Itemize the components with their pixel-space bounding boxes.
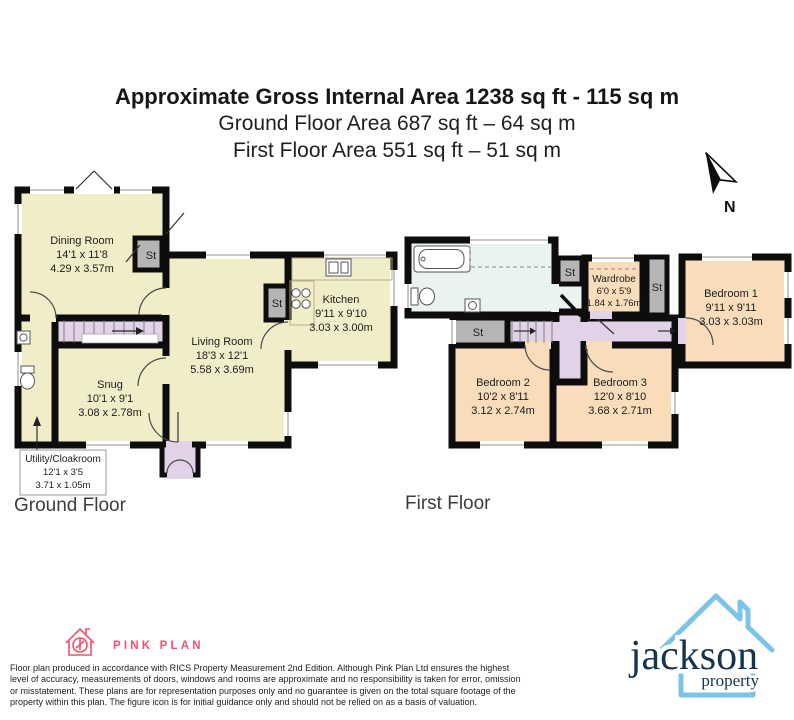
- floor-label-ground: Ground Floor: [14, 495, 127, 516]
- svg-text:6'0 x 5'9: 6'0 x 5'9: [597, 286, 632, 297]
- room-label-bedroom1: Bedroom 1: [704, 288, 758, 300]
- room-label-living: Living Room: [191, 336, 252, 348]
- ground-floor-plan: Utility/Cloakroom 12'1 x 3'5 3.71 x 1.05…: [14, 171, 398, 516]
- svg-text:10'2 x 8'11: 10'2 x 8'11: [477, 391, 529, 403]
- toilet-cistern: [411, 288, 418, 305]
- room-label-bedroom3: Bedroom 3: [593, 377, 647, 389]
- svg-text:1.84 x 1.76m: 1.84 x 1.76m: [587, 298, 642, 309]
- svg-text:5.58 x 3.69m: 5.58 x 3.69m: [190, 364, 254, 376]
- sink-bowl: [20, 334, 27, 341]
- door-gap: [74, 186, 114, 194]
- jackson-sub: property: [701, 671, 759, 690]
- disclaimer-line: level of accuracy, measurements of doors…: [10, 674, 635, 685]
- room-label-dining: Dining Room: [50, 235, 114, 247]
- disclaimer-text: Floor plan produced in accordance with R…: [10, 663, 635, 709]
- room-label-kitchen: Kitchen: [323, 294, 360, 306]
- door-gap: [284, 320, 292, 350]
- room-dims-ft: 12'1 x 3'5: [43, 467, 83, 478]
- pinkplan-logo: PINK PLAN: [66, 629, 204, 655]
- svg-text:3.68 x 2.71m: 3.68 x 2.71m: [588, 405, 652, 417]
- sink-bowl: [469, 302, 477, 310]
- jackson-logo: jackson property: [628, 596, 772, 695]
- st-label: St: [652, 282, 662, 294]
- north-label: N: [724, 199, 736, 216]
- st-label: St: [565, 267, 575, 279]
- front-door-gap: [167, 471, 193, 479]
- floor-label-first: First Floor: [405, 493, 491, 514]
- room-label-utility: Utility/Cloakroom: [25, 454, 101, 465]
- room-label-snug: Snug: [97, 379, 123, 391]
- door-gap: [590, 311, 612, 319]
- room-label-wardrobe: Wardrobe: [592, 274, 636, 285]
- bath-inner: [419, 250, 464, 269]
- door-gap: [525, 341, 551, 349]
- bath-tap: [421, 257, 425, 261]
- toilet-cistern: [21, 366, 34, 373]
- door-gap: [586, 341, 612, 349]
- door-gap: [162, 356, 170, 384]
- door-gap: [30, 314, 56, 322]
- floorplan-drawing: N: [0, 0, 794, 720]
- disclaimer-line: Floor plan produced in accordance with R…: [10, 663, 635, 674]
- disclaimer-line: property within this plan. The figure ic…: [10, 697, 635, 708]
- room-label-bedroom2: Bedroom 2: [476, 377, 530, 389]
- north-arrow-icon: N: [694, 146, 736, 216]
- landing-junction: [552, 322, 588, 341]
- svg-text:18'3 x 12'1: 18'3 x 12'1: [196, 350, 249, 362]
- hob-icon: [292, 289, 300, 297]
- toilet-icon: [420, 288, 435, 305]
- svg-text:9'11 x 9'11: 9'11 x 9'11: [706, 302, 757, 314]
- st-label: St: [473, 327, 483, 339]
- door-gap: [166, 441, 192, 449]
- disclaimer-line: or misstatement. These plans are for rep…: [10, 686, 635, 697]
- pinkplan-name: PINK PLAN: [113, 640, 204, 652]
- svg-text:3.08 x 2.78m: 3.08 x 2.78m: [78, 407, 142, 419]
- svg-text:3.03 x 3.00m: 3.03 x 3.00m: [309, 322, 373, 334]
- french-doors-dining: [74, 171, 114, 194]
- svg-text:3.12 x 2.74m: 3.12 x 2.74m: [471, 405, 535, 417]
- door-gap: [551, 284, 559, 312]
- door-gap: [678, 318, 686, 344]
- svg-text:9'11 x 9'10: 9'11 x 9'10: [315, 308, 367, 320]
- svg-text:14'1 x 11'8: 14'1 x 11'8: [56, 249, 108, 261]
- svg-text:12'0 x 8'10: 12'0 x 8'10: [594, 391, 647, 403]
- svg-text:4.29 x 3.57m: 4.29 x 3.57m: [50, 263, 114, 275]
- svg-text:10'1 x 9'1: 10'1 x 9'1: [87, 393, 133, 405]
- pinkplan-house-icon: [66, 629, 94, 655]
- st-label: St: [272, 298, 282, 310]
- first-floor-plan: Bedroom 1 9'11 x 9'11 3.03 x 3.03m Bedro…: [404, 236, 792, 514]
- toilet-icon: [21, 373, 35, 389]
- stair-void: [82, 334, 158, 343]
- st-label: St: [146, 250, 156, 262]
- floorplan-page: Approximate Gross Internal Area 1238 sq …: [0, 0, 794, 720]
- room-dims-m: 3.71 x 1.05m: [36, 480, 91, 491]
- door-gap: [162, 288, 170, 315]
- svg-text:3.03 x 3.03m: 3.03 x 3.03m: [699, 316, 763, 328]
